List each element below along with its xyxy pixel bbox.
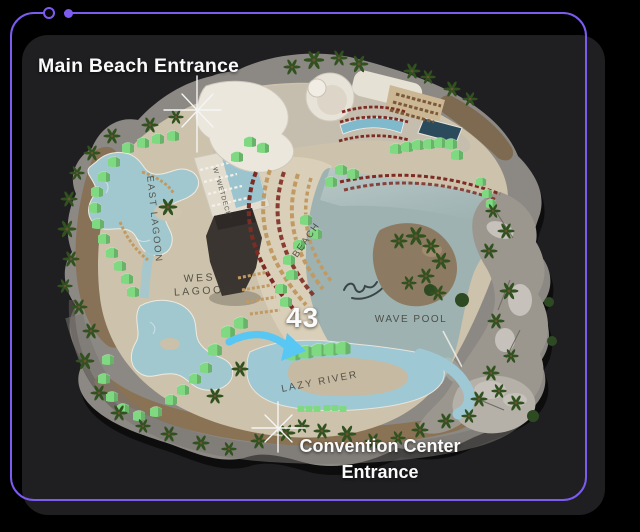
frame-line-gap — [55, 11, 64, 15]
map-label-wave-pool: WAVE POOL — [375, 314, 447, 325]
main-beach-entrance-label: Main Beach Entrance — [38, 55, 239, 78]
map-label-west-lagoon-1: WEST — [183, 271, 224, 285]
frame-dot-handle[interactable] — [64, 9, 73, 18]
count-label: 43 — [286, 302, 319, 334]
frame-ring-handle[interactable] — [43, 7, 55, 19]
convention-center-entrance-label: Convention Center Entrance — [275, 433, 485, 485]
convention-label-line2: Entrance — [275, 459, 485, 485]
annotated-screenshot: EAST LAGOON W "WETDECK" WEST LAGOON BEAC… — [0, 0, 640, 532]
convention-label-line1: Convention Center — [275, 433, 485, 459]
